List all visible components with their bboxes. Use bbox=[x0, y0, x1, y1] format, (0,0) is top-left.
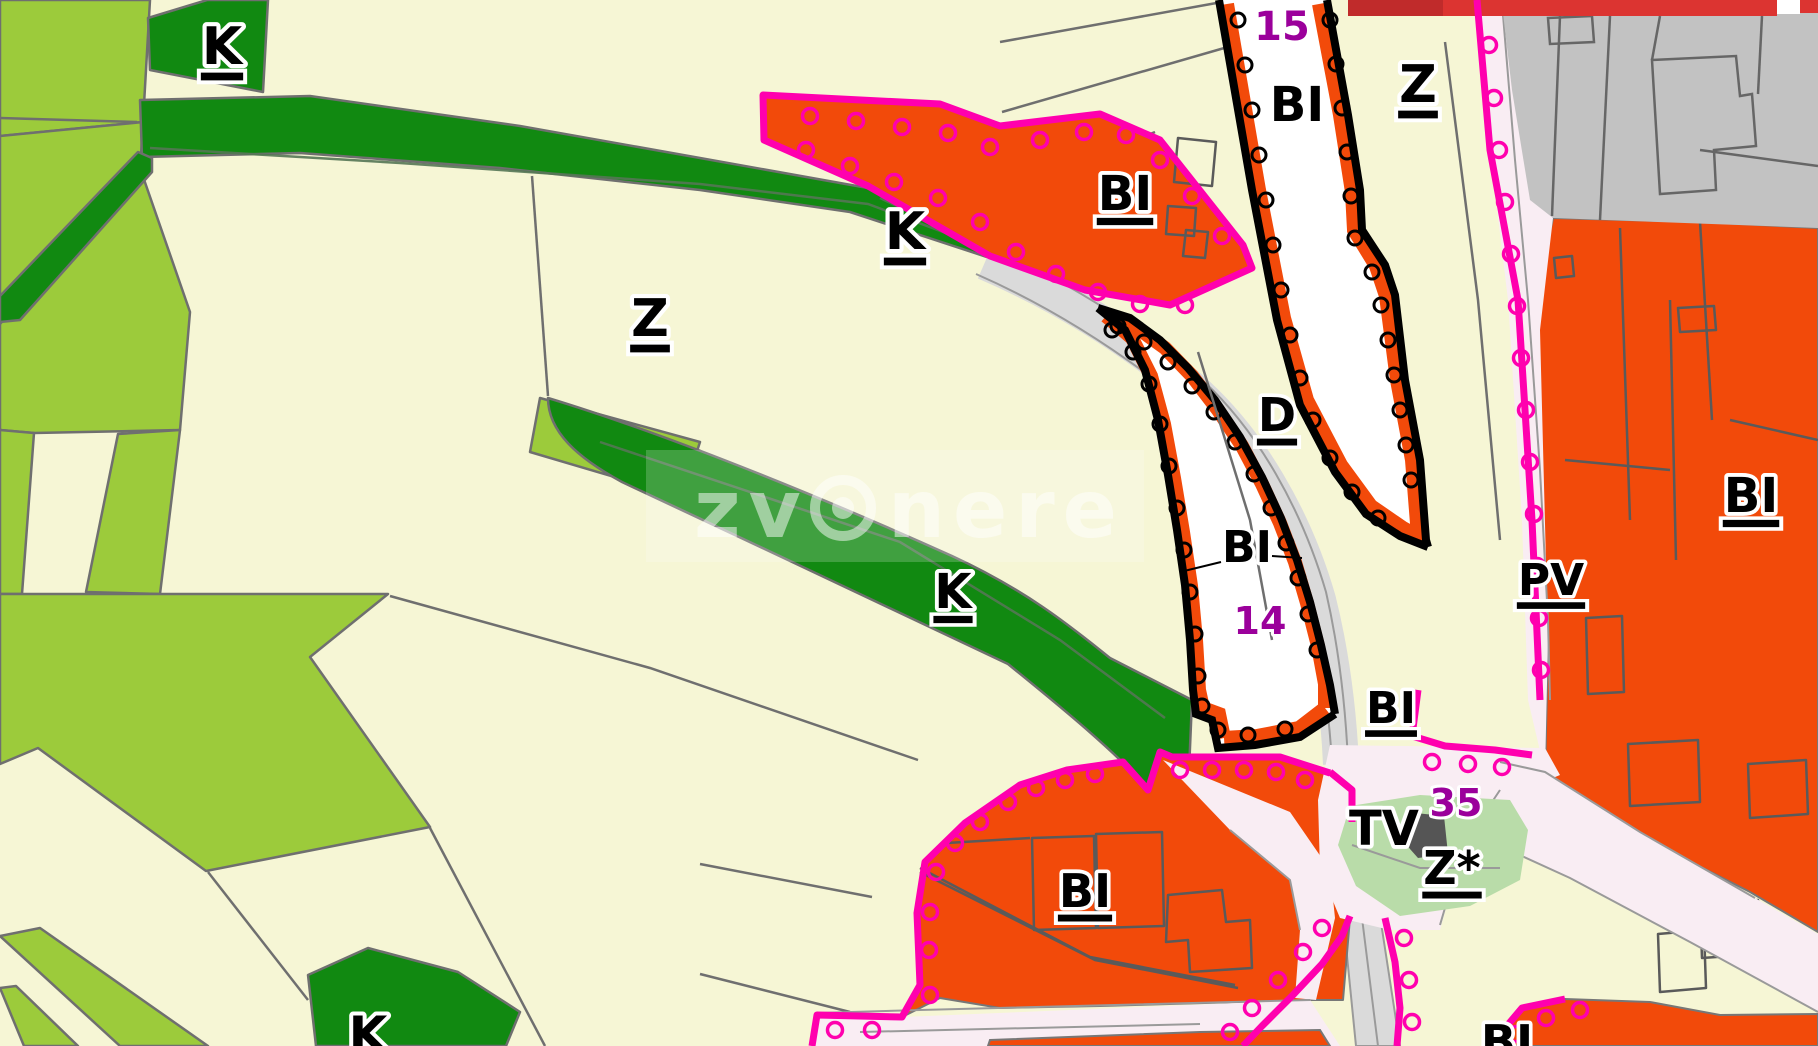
zone-label-Zstar-17: Z* bbox=[1423, 841, 1480, 895]
zone-label-Z-7: Z bbox=[1399, 55, 1437, 115]
zone-label-D-9: D bbox=[1258, 388, 1296, 442]
zoning-map-viewport[interactable]: KKZKKBIBIZ15DBI14PVBIBITV35Z*BIBI zv ner… bbox=[0, 0, 1818, 1046]
zone-label-BI-19: BI bbox=[1481, 1015, 1533, 1046]
zone-label-Z-2: Z bbox=[631, 289, 669, 349]
watermark: zv nere bbox=[646, 450, 1144, 562]
zone-label-BI-18: BI bbox=[1059, 864, 1111, 918]
zone-label-BI-13: BI bbox=[1724, 468, 1778, 524]
zone-label-K-3: K bbox=[934, 564, 973, 620]
zone-label-K-0: K bbox=[202, 17, 244, 77]
watermark-text-suffix: nere bbox=[888, 463, 1125, 556]
built-area-gray bbox=[1503, 13, 1818, 228]
watermark-text-prefix: zv bbox=[694, 463, 809, 556]
zone-label-BI-5: BI bbox=[1098, 166, 1152, 222]
zone-label-K-4: K bbox=[349, 1006, 390, 1046]
zone-label-15-8: 15 bbox=[1254, 4, 1310, 50]
zone-label-BI-6: BI bbox=[1270, 77, 1324, 133]
zone-label-PV-12: PV bbox=[1518, 555, 1584, 606]
zone-label-K-1: K bbox=[885, 202, 927, 262]
zone-label-BI-14: BI bbox=[1366, 683, 1416, 734]
zone-label-14-11: 14 bbox=[1234, 599, 1287, 643]
red-top-bar bbox=[1348, 0, 1818, 16]
zoning-map-canvas[interactable]: KKZKKBIBIZ15DBI14PVBIBITV35Z*BIBI zv ner… bbox=[0, 0, 1818, 1046]
zone-label-35-16: 35 bbox=[1430, 781, 1483, 825]
zone-label-BI-10: BI bbox=[1222, 522, 1272, 573]
zone-label-TV-15: TV bbox=[1349, 801, 1419, 857]
